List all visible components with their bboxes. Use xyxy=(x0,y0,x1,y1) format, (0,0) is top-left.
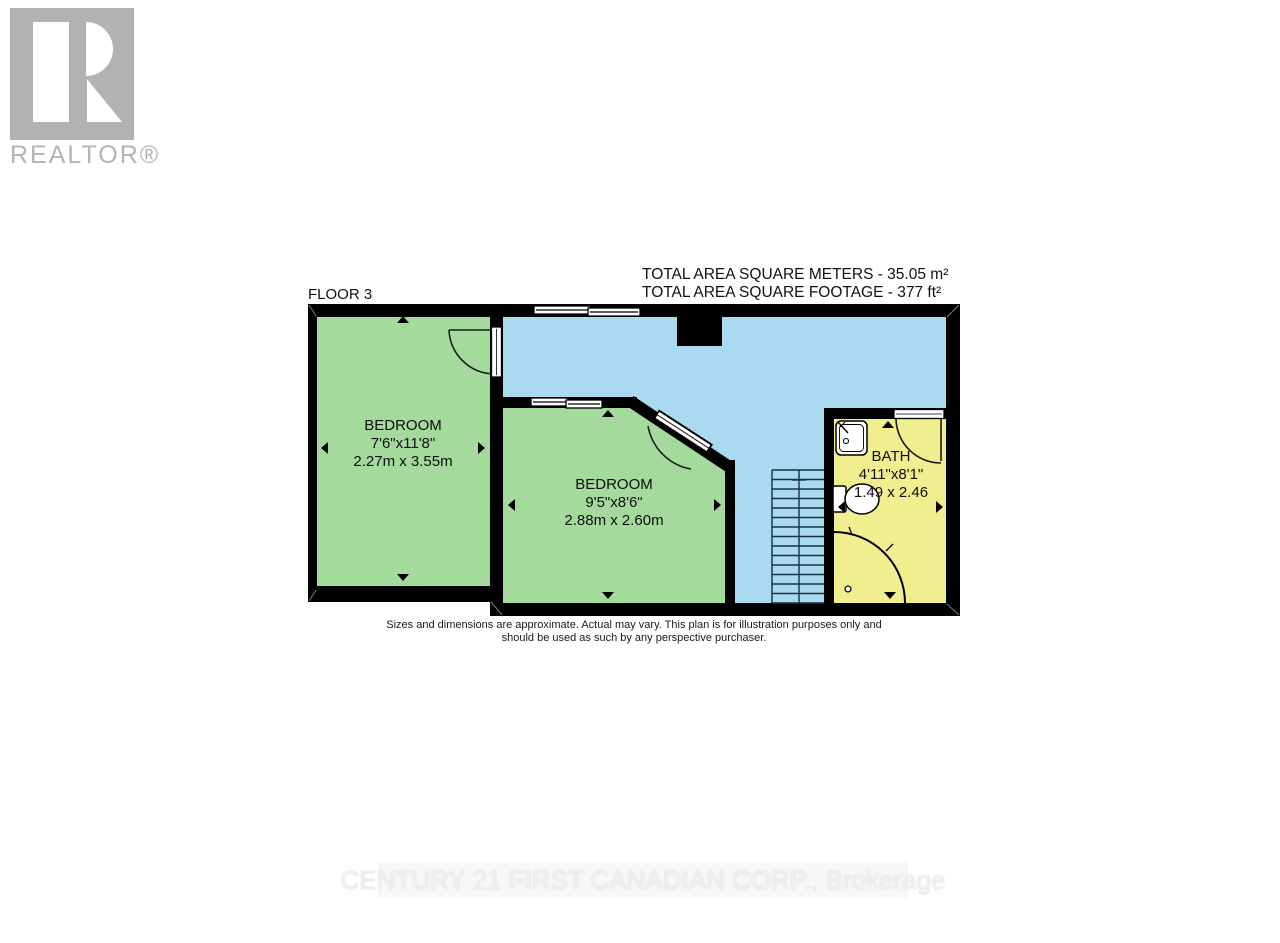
room-dims-metric: 2.88m x 2.60m xyxy=(564,512,663,530)
brokerage-watermark-text: CENTURY 21 FIRST CANADIAN CORP., Brokera… xyxy=(341,865,946,896)
room-name: BATH xyxy=(854,448,928,466)
room-name: BEDROOM xyxy=(564,476,663,494)
bath-label: BATH 4'11"x8'1" 1.49 x 2.46 xyxy=(854,448,928,502)
brokerage-watermark: CENTURY 21 FIRST CANADIAN CORP., Brokera… xyxy=(378,862,908,898)
room-dims-metric: 1.49 x 2.46 xyxy=(854,484,928,502)
chimney-notch xyxy=(677,304,722,346)
bedroom-1-label: BEDROOM 7'6"x11'8" 2.27m x 3.55m xyxy=(353,417,452,471)
total-area-metric: TOTAL AREA SQUARE METERS - 35.05 m² xyxy=(642,266,948,284)
realtor-logo-text: REALTOR® xyxy=(10,141,160,170)
realtor-logo-icon xyxy=(10,8,134,140)
disclaimer-text: Sizes and dimensions are approximate. Ac… xyxy=(299,619,969,645)
floorplan-page: REALTOR® FLOOR 3 TOTAL AREA SQUARE METER… xyxy=(0,0,1280,943)
room-dims-imperial: 4'11"x8'1" xyxy=(854,466,928,484)
room-name: BEDROOM xyxy=(353,417,452,435)
room-dims-imperial: 9'5"x8'6" xyxy=(564,494,663,512)
room-dims-metric: 2.27m x 3.55m xyxy=(353,453,452,471)
disclaimer-line-1: Sizes and dimensions are approximate. Ac… xyxy=(299,619,969,632)
disclaimer-line-2: should be used as such by any perspectiv… xyxy=(299,632,969,645)
bedroom-2-label: BEDROOM 9'5"x8'6" 2.88m x 2.60m xyxy=(564,476,663,530)
room-dims-imperial: 7'6"x11'8" xyxy=(353,435,452,453)
